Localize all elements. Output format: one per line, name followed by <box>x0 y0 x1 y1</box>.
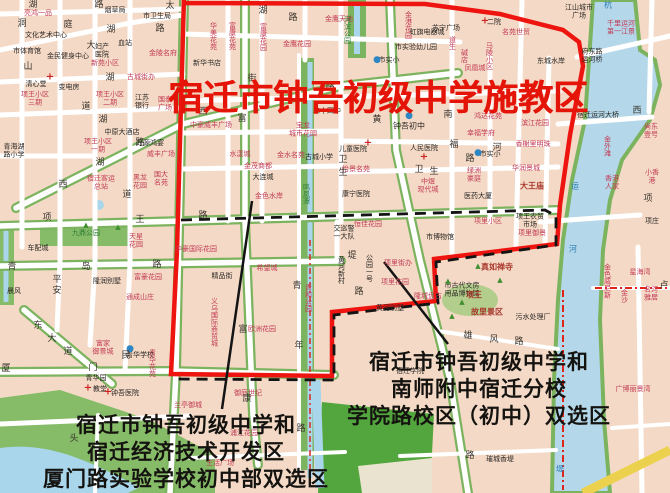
map-label: 年 <box>294 342 303 352</box>
map-label: ▲ <box>445 278 450 286</box>
map-label: 金陵名府 <box>149 50 177 58</box>
map-label: 康 <box>242 395 251 405</box>
map-label: 万源鸿宴 <box>136 140 164 148</box>
map-label: 河 <box>569 246 577 255</box>
map-label: 项王农贸 市场 <box>516 213 544 228</box>
map-label: 大王庙 <box>520 183 544 192</box>
map-label: 太 <box>165 2 174 12</box>
map-label: 金沙 <box>621 289 628 303</box>
annotation-sw-line2: 宿迁经济技术开发区 <box>30 439 342 466</box>
map-label: + <box>46 73 54 84</box>
map-label: + <box>481 17 489 28</box>
map-label: 江山城市 广场 <box>565 4 593 19</box>
map-label: 故里景区 <box>471 309 503 318</box>
map-label: 风 <box>489 336 498 346</box>
map-label: 道 <box>81 103 90 113</box>
map-label: 富康花园 <box>260 23 267 51</box>
map-label: ▲ <box>449 313 454 321</box>
map-label: + <box>104 388 112 399</box>
map-label: ▲ <box>497 277 502 285</box>
map-label: 隆城盘古 <box>414 293 442 301</box>
map-label: 变电房 <box>59 84 80 92</box>
map-label: 公园一号 <box>366 254 373 282</box>
map-label: 市体育馆 <box>13 48 41 56</box>
map-label: 河 <box>492 144 501 154</box>
map-label: 项里街办 <box>384 260 412 268</box>
map-label: 亮鸿一品 <box>24 10 52 18</box>
map-label: + <box>84 384 92 395</box>
map-label: 交巡警 一大队 <box>334 225 355 240</box>
map-label: 生 <box>338 169 347 179</box>
map-label: 义乌国际商贸城 <box>211 298 218 347</box>
map-label: 项 <box>643 195 652 205</box>
map-label: 河滨公园 <box>344 16 351 44</box>
map-label: 璀城香堤 <box>486 456 514 464</box>
map-label: 路 <box>155 25 164 35</box>
map-label: 福 <box>449 141 458 151</box>
map-label: 天星 花园 <box>129 233 143 248</box>
map-label: + <box>364 139 372 150</box>
annotation-sw-line3: 厦门路实验学校初中部双选区 <box>30 466 342 493</box>
map-label: 康宁医院 <box>342 191 370 199</box>
map-label: 道生 <box>449 36 456 50</box>
map-label: 晨风 <box>7 288 21 296</box>
map-label: 水漾城 <box>230 151 251 159</box>
map-label: 车配城 <box>28 245 49 253</box>
map-label: 精品街 <box>212 273 233 281</box>
map-label: 金色水岸 <box>255 193 283 201</box>
map-label: 岛 <box>81 263 90 273</box>
map-label: 金水名苑 <box>277 152 305 160</box>
map-label: 湖 <box>105 74 114 84</box>
map-label: ▲ <box>459 299 464 307</box>
map-label: 青 <box>292 282 301 292</box>
map-label: 堤 <box>556 466 564 475</box>
map-label: 星海湾 <box>630 269 651 277</box>
map-label: 厦 <box>1 365 10 375</box>
map-label: 民 <box>121 352 130 362</box>
annotation-se-line1: 宿迁市钟吾初级中学和 <box>328 349 630 376</box>
map-label: 尚东 壹号 <box>644 123 658 138</box>
map-label: 黄河新村 <box>338 256 345 284</box>
map-label: 大 <box>86 42 95 52</box>
map-label: 东 <box>33 322 42 332</box>
map-label: 隆润别墅 <box>93 278 121 286</box>
map-label: 幸福学府 <box>467 130 495 138</box>
map-label: 路 <box>152 261 161 271</box>
map-label: 湖 <box>98 116 107 126</box>
map-label: 安 <box>52 287 61 297</box>
map-label: 通成山庄 <box>126 294 154 302</box>
map-label: 大连城 <box>253 174 274 182</box>
map-label: 钟吾初中 <box>393 123 425 132</box>
map-label: 金外滩 <box>604 136 611 157</box>
map-label: 庭 <box>63 21 72 31</box>
map-label: 希望城 <box>257 265 278 273</box>
map-label: 雄 <box>463 332 472 342</box>
map-label: 千里运河 第一江景 <box>607 20 635 35</box>
map-label: 江苏 银行 <box>135 94 149 109</box>
map-label: 卫 <box>338 156 347 166</box>
map-screenshot: 湖路太烟草局市卫生局亮鸿一品洞庭湖路文化艺术中心市体育馆金民健身中心妇产 医院血… <box>0 0 670 493</box>
map-label: 名苑世贸 <box>502 29 530 37</box>
map-label: 项里御景 <box>518 230 546 238</box>
map-label: 卢 <box>659 282 668 292</box>
map-label: 道 <box>122 191 131 201</box>
map-label: 黄河别墅 <box>376 305 404 313</box>
map-label: 威丰广场 <box>147 151 175 159</box>
map-label: 血站 <box>118 40 132 48</box>
map-label: 路 <box>465 452 474 462</box>
map-label: ▲ <box>83 222 88 230</box>
map-label: 东城水岸 <box>537 58 565 66</box>
map-label: 富家 御景城 <box>93 340 114 355</box>
map-label: 烟草局 <box>105 7 126 15</box>
map-label: 洞 <box>17 20 26 30</box>
map-label: 项里花园 <box>381 279 409 287</box>
map-label: 青海湖 路小学 <box>4 143 25 158</box>
map-label: 富康花苑 <box>229 22 236 50</box>
map-label: 卫 <box>414 166 423 176</box>
map-label: 金鹰花园 <box>283 41 311 49</box>
map-label: 青华花苑 <box>149 349 156 377</box>
map-label: 新苑小区 <box>91 60 119 68</box>
map-label: 九鼎公园 <box>72 230 100 238</box>
map-title: 宿迁市钟吾初级中学施教区 <box>168 70 588 121</box>
map-label: 医药大厦 <box>464 193 492 201</box>
annotation-southwest: 宿迁市钟吾初级中学和 宿迁经济技术开发区 厦门路实验学校初中部双选区 <box>30 412 342 493</box>
annotation-se-line2: 南师附中宿迁分校 <box>328 376 630 403</box>
map-label: 市博物馆 <box>426 234 454 242</box>
map-label: 堤 <box>347 252 356 262</box>
map-label: ▲ <box>475 263 480 271</box>
map-label: 绿洲 豪庭 <box>467 167 481 182</box>
map-label: 中豪国际花园 <box>175 246 217 254</box>
map-label: 项里小区 <box>474 218 502 226</box>
map-label: 道 <box>63 348 72 358</box>
map-label: 路 <box>198 212 207 222</box>
map-label: 钟吾医院 <box>111 390 139 398</box>
map-label: 清心堂 <box>26 81 47 89</box>
map-label: 湖 <box>258 7 267 17</box>
map-label: 中煜 现代城 <box>418 178 439 193</box>
map-label: 大 <box>47 335 56 345</box>
map-label: 新华书店 <box>193 60 221 68</box>
map-label: 湖 <box>95 159 104 169</box>
map-label: 文化艺术中心 <box>25 32 67 40</box>
map-label: 项王 <box>466 292 482 301</box>
map-label: 项王小区 一期 <box>84 138 112 153</box>
map-label: 路 <box>354 288 363 298</box>
map-label: 路 <box>514 338 523 348</box>
map-label: 儿童医院 <box>339 146 367 154</box>
map-label: 路 <box>94 1 103 11</box>
map-label: 华美花苑 <box>210 22 217 50</box>
map-label: 西 <box>632 107 641 117</box>
map-label: 项王小区 二期 <box>96 91 124 106</box>
map-label: 平 <box>52 276 61 286</box>
map-label: 项庄 <box>645 218 659 226</box>
map-label: 金民健身中心 <box>47 53 89 61</box>
annotation-sw-line1: 宿迁市钟吾初级中学和 <box>30 412 342 439</box>
map-label: 运 <box>571 183 579 192</box>
map-label: 路 <box>465 155 474 165</box>
map-label: ● <box>474 149 482 159</box>
map-label: 恒佳花园 <box>354 221 382 229</box>
map-label: 金色威尼斯 <box>604 264 611 299</box>
map-label: 污水处理厂 <box>516 314 551 322</box>
map-label: 路 <box>288 14 297 24</box>
map-label: 兰亭御城 <box>174 402 202 410</box>
map-label: 青和公园 <box>305 284 312 312</box>
map-label: 湖 <box>106 26 115 36</box>
map-label: 中原大酒店 <box>105 129 140 137</box>
map-label: 小香港 <box>643 169 661 184</box>
map-label: 王 <box>135 216 144 226</box>
map-label: 富 <box>238 326 247 336</box>
map-label: 碱店 <box>461 49 468 63</box>
map-label: 国大 名苑 <box>154 171 168 186</box>
map-label: 黑龙 花园 <box>133 174 147 189</box>
map-label: 市卫生局 <box>143 13 171 21</box>
map-label: ● <box>373 56 381 66</box>
map-label: 金茂商都 <box>244 163 272 171</box>
map-label: 生 <box>429 168 438 178</box>
annotation-se-line3: 学院路校区（初中）双选区 <box>328 403 630 430</box>
map-label: + <box>420 153 428 164</box>
map-label: 鸣凤潭 <box>303 184 310 205</box>
map-label: 香榭里明珠 <box>516 141 551 149</box>
map-label: 宿迁客运 总站 <box>87 175 115 190</box>
map-label: 山 <box>23 63 32 73</box>
map-label: 古城街办 <box>127 74 155 82</box>
map-label: 项王小区 三期 <box>21 91 49 106</box>
map-label: 市实小 <box>379 57 400 65</box>
map-label: 中豪威丰广场 <box>190 122 232 130</box>
map-label: 名河 雅居 <box>644 286 658 301</box>
map-label: 宝龙 城市花园 <box>289 122 317 137</box>
map-label: 杭 <box>604 2 612 11</box>
map-label: 项 <box>42 214 51 224</box>
map-label: 古城小学 <box>305 154 333 162</box>
map-label: 市实验幼儿园 <box>395 44 437 52</box>
map-label: 马陵小区 <box>486 42 493 70</box>
map-label: 富豪花园 <box>134 274 162 282</box>
map-label: 西 <box>58 181 67 191</box>
map-label: 青 <box>7 263 16 273</box>
map-label: 滨江花园 <box>521 120 549 128</box>
map-label: 府东路 运河桥 <box>582 48 603 63</box>
map-label: 华润景城 <box>512 165 540 173</box>
map-label: ▲ <box>115 224 120 232</box>
map-label: 门 <box>88 364 97 374</box>
map-label: 香港 人家 <box>605 175 619 190</box>
annotation-southeast: 宿迁市钟吾初级中学和 南师附中宿迁分校 学院路校区（初中）双选区 <box>328 349 630 430</box>
map-label: 妇产 医院 <box>95 43 109 58</box>
map-label: 苏宁广场 <box>432 25 460 33</box>
map-label: 真如禅寺 <box>481 264 513 273</box>
map-label: 欧洲花园 <box>248 326 276 334</box>
